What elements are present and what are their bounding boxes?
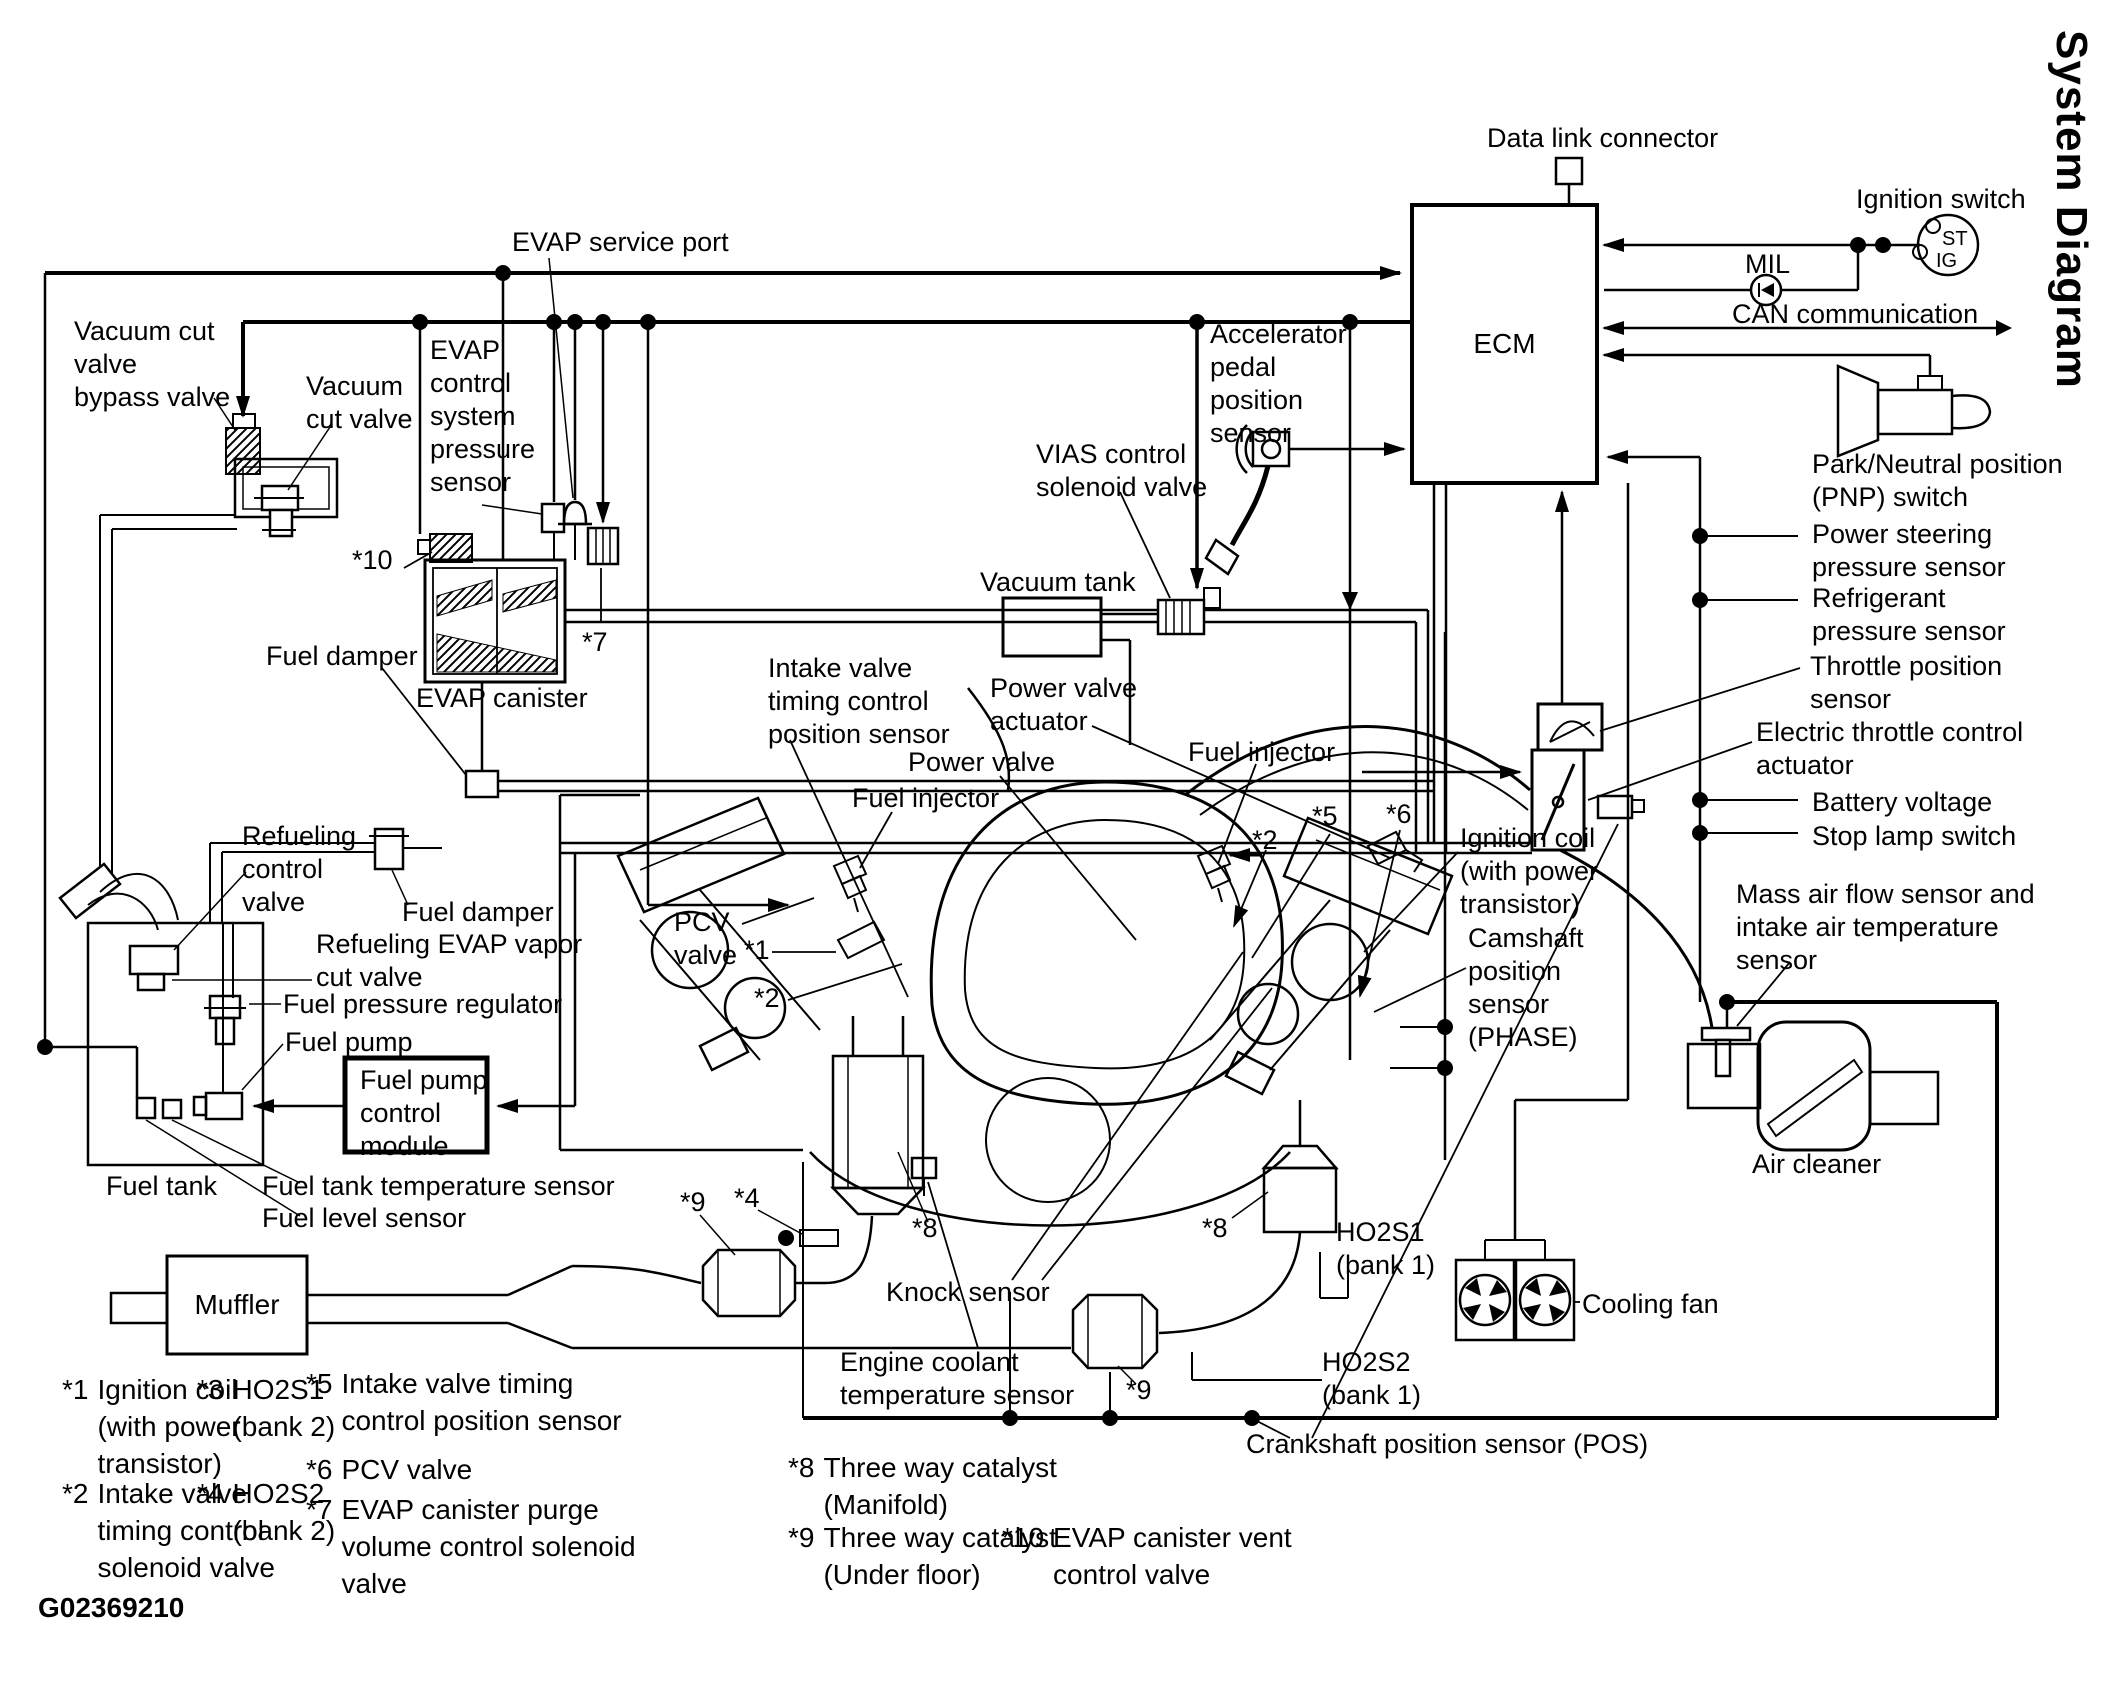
- label-refrigerant: Refrigerant pressure sensor: [1812, 582, 2006, 648]
- ignition-coil-left-icon: [838, 922, 884, 958]
- label-throttle-position-sensor: Throttle position sensor: [1810, 650, 2002, 716]
- label-star1: *1: [744, 934, 770, 967]
- throttle-position-sensor-icon: [1538, 704, 1602, 750]
- label-ecm: ECM: [1412, 205, 1597, 483]
- label-star9-left: *9: [680, 1186, 706, 1219]
- label-data-link-connector: Data link connector: [1487, 122, 1718, 155]
- label-electric-throttle: Electric throttle control actuator: [1756, 716, 2023, 782]
- label-evap-pressure-sensor: EVAP control system pressure sensor: [430, 334, 535, 499]
- fuel-filler-icon: [60, 864, 178, 930]
- ignition-st: ST: [1942, 228, 1968, 251]
- label-crankshaft: Crankshaft position sensor (POS): [1246, 1428, 1648, 1461]
- footnote-8: *8Three way catalyst (Manifold): [788, 1450, 1057, 1524]
- refueling-control-valve-icon: [130, 946, 178, 990]
- label-fpcm: Fuel pump control module: [360, 1064, 488, 1163]
- label-fuel-tank: Fuel tank: [106, 1170, 217, 1203]
- mil-icon: [1604, 245, 1858, 305]
- footnote-5: *5Intake valve timing control position s…: [306, 1366, 622, 1440]
- label-engine-coolant: Engine coolant temperature sensor: [840, 1346, 1074, 1412]
- pnp-switch-icon: [1838, 366, 1990, 456]
- fuel-level-sensor-icon: [163, 1100, 181, 1118]
- page-title: System Diagram: [2046, 30, 2096, 389]
- system-diagram-page: System Diagram Data link connector Ignit…: [0, 0, 2124, 1689]
- label-power-valve: Power valve: [908, 746, 1055, 779]
- label-stop-lamp-switch: Stop lamp switch: [1812, 820, 2016, 853]
- label-evap-service-port: EVAP service port: [512, 226, 729, 259]
- catalyst-manifold-left-icon: [833, 1056, 923, 1214]
- evap-pressure-sensor-icon: [542, 504, 564, 532]
- label-fuel-tank-temp: Fuel tank temperature sensor: [262, 1170, 615, 1203]
- label-fuel-level: Fuel level sensor: [262, 1202, 466, 1235]
- label-air-cleaner: Air cleaner: [1752, 1148, 1881, 1181]
- fuel-pump-icon: [194, 1093, 242, 1119]
- label-fuel-damper-upper: Fuel damper: [266, 640, 418, 673]
- label-fuel-injector-right: Fuel injector: [1188, 736, 1335, 769]
- fuel-tank-temp-sensor-icon: [137, 1098, 155, 1118]
- label-knock-sensor: Knock sensor: [886, 1276, 1050, 1309]
- catalyst-manifold-right-icon: [1264, 1146, 1336, 1232]
- label-star8-left: *8: [912, 1212, 938, 1245]
- label-intake-valve-pos: Intake valve timing control position sen…: [768, 652, 950, 751]
- label-mil: MIL: [1745, 248, 1790, 281]
- label-ho2s1-bank1: HO2S1 (bank 1): [1336, 1216, 1435, 1282]
- label-ignition-switch: Ignition switch: [1856, 183, 2026, 216]
- label-pcv-valve: PCV valve: [674, 906, 737, 972]
- label-star4: *4: [734, 1182, 760, 1215]
- label-battery-voltage: Battery voltage: [1812, 786, 1992, 819]
- catalyst-underfloor-right-icon: [1073, 1295, 1157, 1368]
- evap-purge-valve-icon: [588, 528, 618, 564]
- label-star10: *10: [352, 544, 393, 577]
- label-star7: *7: [582, 626, 608, 659]
- label-ignition-coil: Ignition coil (with power transistor): [1460, 822, 1598, 921]
- label-vacuum-cut-bypass: Vacuum cut valve bypass valve: [74, 315, 230, 414]
- label-vacuum-tank: Vacuum tank: [980, 566, 1136, 599]
- label-refueling-control-valve: Refueling control valve: [242, 820, 356, 919]
- label-accelerator-pedal-position-sensor: Accelerator pedal position sensor: [1210, 318, 1347, 450]
- label-star6: *6: [1386, 798, 1412, 831]
- data-link-connector-icon: [1556, 158, 1582, 205]
- label-star2-right: *2: [1252, 824, 1278, 857]
- label-ho2s2-bank1: HO2S2 (bank 1): [1322, 1346, 1421, 1412]
- label-power-steering: Power steering pressure sensor: [1812, 518, 2006, 584]
- mass-air-flow-sensor-icon: [1688, 1002, 1760, 1108]
- footnote-7: *7EVAP canister purge volume control sol…: [306, 1492, 636, 1603]
- catalyst-underfloor-left-icon: [703, 1250, 795, 1316]
- label-fuel-injector-left: Fuel injector: [852, 782, 999, 815]
- label-vacuum-cut-valve: Vacuum cut valve: [306, 370, 413, 436]
- ignition-ig: IG: [1936, 250, 1957, 273]
- label-evap-canister: EVAP canister: [416, 682, 588, 715]
- figure-code: G02369210: [38, 1592, 184, 1624]
- label-muffler: Muffler: [167, 1256, 307, 1354]
- label-star9-right: *9: [1126, 1374, 1152, 1407]
- label-fuel-pressure-regulator: Fuel pressure regulator: [283, 988, 562, 1021]
- label-star2-left: *2: [754, 982, 780, 1015]
- label-camshaft: Camshaft position sensor (PHASE): [1468, 922, 1584, 1054]
- label-cooling-fan: Cooling fan: [1582, 1288, 1719, 1321]
- label-star8-right: *8: [1202, 1212, 1228, 1245]
- footnote-10: *10EVAP canister vent control valve: [1002, 1520, 1292, 1594]
- evap-vent-control-valve-icon: [418, 534, 472, 562]
- label-power-valve-actuator: Power valve actuator: [990, 672, 1137, 738]
- air-cleaner-icon: [1758, 1022, 1938, 1150]
- fuel-damper-upper-icon: [466, 771, 498, 797]
- fuel-tank-icon: [88, 923, 263, 1165]
- cooling-fan-icon: [1456, 1240, 1574, 1340]
- label-refueling-evap: Refueling EVAP vapor cut valve: [316, 928, 582, 994]
- label-star5: *5: [1312, 800, 1338, 833]
- label-vias: VIAS control solenoid valve: [1036, 438, 1207, 504]
- vacuum-cut-valve-icon: [254, 486, 304, 536]
- footnote-6: *6PCV valve: [306, 1452, 472, 1489]
- label-fuel-pump: Fuel pump: [285, 1026, 413, 1059]
- label-pnp-switch: Park/Neutral position (PNP) switch: [1812, 448, 2063, 514]
- vacuum-tank-icon: [1003, 598, 1101, 656]
- ho2s2-bank2-icon: [800, 1230, 838, 1246]
- label-can-communication: CAN communication: [1732, 298, 1978, 331]
- crankshaft-position-sensor-icon: [1598, 796, 1644, 818]
- label-mass-air-flow: Mass air flow sensor and intake air temp…: [1736, 878, 2035, 977]
- evap-canister-icon: [425, 560, 565, 682]
- ignition-switch-icon: [1604, 215, 1978, 275]
- label-fuel-damper-lower: Fuel damper: [402, 896, 554, 929]
- fuel-pressure-regulator-icon: [204, 996, 246, 1044]
